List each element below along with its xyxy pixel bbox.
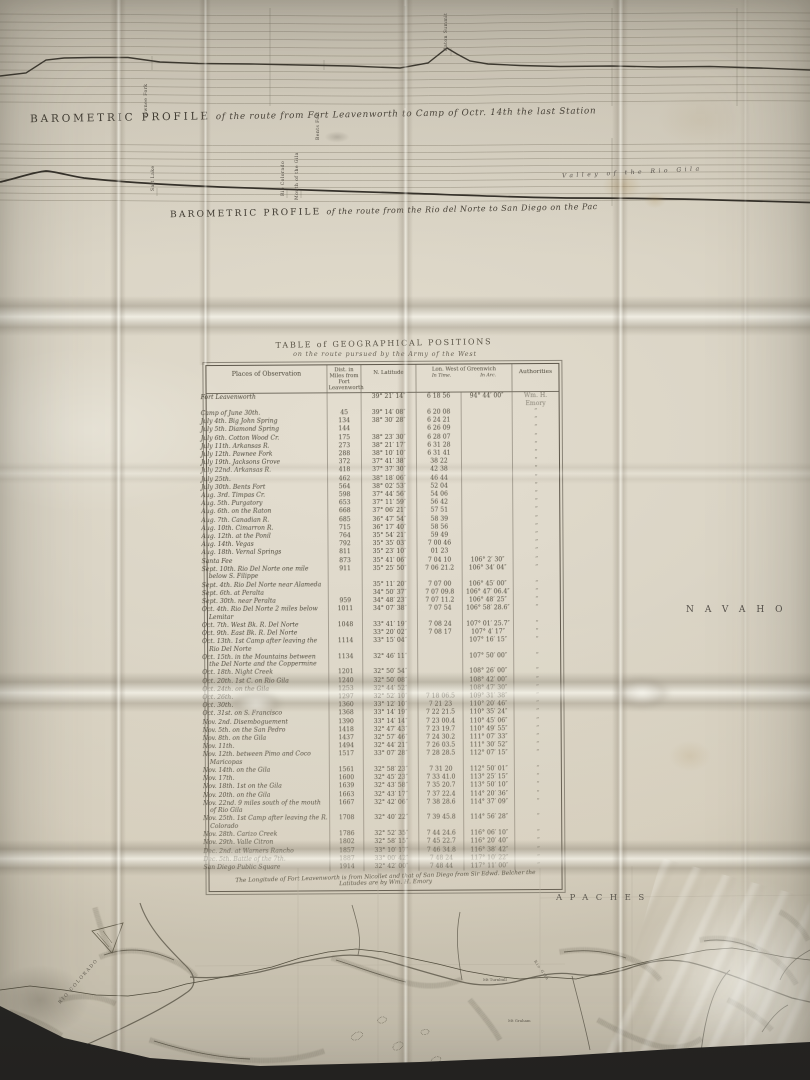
rivers xyxy=(36,903,810,1062)
map-sheet: Pawnee Fork Bents Fort Raton Summit BARO… xyxy=(0,0,810,1080)
map-graticule xyxy=(195,864,810,1062)
tank-ovals xyxy=(350,1016,442,1065)
mountain-ranges xyxy=(10,908,808,1061)
mt-graham-label: Mt Graham xyxy=(508,1018,531,1023)
mt-turnbull-label: Mt Turnbull xyxy=(483,977,507,982)
map-terrain-drawing xyxy=(0,0,810,1080)
photograph-of-antique-map: Pawnee Fork Bents Fort Raton Summit BARO… xyxy=(0,0,810,1080)
apaches-region-label: APACHES xyxy=(556,893,652,903)
mountain-crests xyxy=(104,940,758,1059)
expedition-route-line xyxy=(0,948,810,996)
navaho-region-label: NAVAHO xyxy=(686,605,794,615)
